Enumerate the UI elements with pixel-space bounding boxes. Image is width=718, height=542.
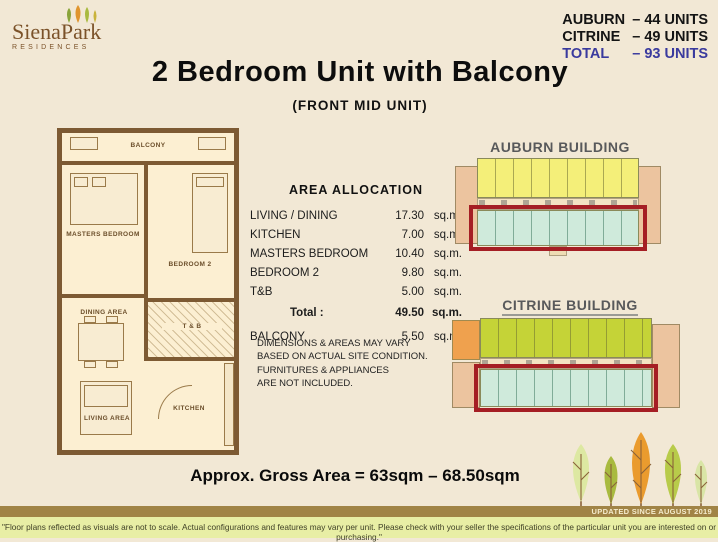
tb-label: T & B — [162, 323, 222, 330]
building-endcap-orange — [452, 320, 480, 360]
auburn-building-label: AUBURN BUILDING — [470, 139, 650, 155]
area-allocation-table: AREA ALLOCATION LIVING / DINING 17.30 sq… — [250, 183, 462, 343]
logo-trees-icon — [64, 5, 106, 24]
chair — [84, 316, 96, 323]
row-label: KITCHEN — [250, 229, 378, 241]
entry-door-swing — [158, 385, 192, 419]
row-value: 5.00 — [378, 286, 424, 298]
row-label: LIVING / DINING — [250, 210, 378, 222]
balcony-zone: BALCONY — [62, 133, 234, 165]
logo-name: SienaPark — [12, 21, 132, 43]
footer-disclaimer-bar: "Floor plans reflected as visuals are no… — [0, 517, 718, 538]
row-unit: sq.m. — [424, 286, 462, 298]
row-value: 17.30 — [378, 210, 424, 222]
footer-brown-bar: UPDATED SINCE AUGUST 2019 — [0, 506, 718, 517]
row-value: 9.80 — [378, 267, 424, 279]
masters-bedroom-label: MASTERS BEDROOM — [62, 231, 144, 238]
balcony-planter — [198, 137, 226, 150]
row-value: 7.00 — [378, 229, 424, 241]
total-label: Total : — [250, 307, 378, 319]
citrine-building-plan — [450, 318, 682, 414]
row-value: 10.40 — [378, 248, 424, 260]
citrine-building-label-text: CITRINE BUILDING — [502, 297, 638, 316]
page-subtitle: (FRONT MID UNIT) — [40, 98, 680, 113]
total-row: Total : 49.50 sq.m. — [250, 307, 462, 319]
kitchen-counter — [224, 363, 234, 446]
logo: SienaPark RESIDENCES — [12, 5, 132, 51]
row-label: MASTERS BEDROOM — [250, 248, 378, 260]
dining-table — [78, 323, 124, 361]
unit-dividers — [478, 159, 638, 197]
footer-disclaimer-text: "Floor plans reflected as visuals are no… — [0, 517, 718, 542]
row-label: T&B — [250, 286, 378, 298]
citrine-top-units-row — [480, 318, 652, 358]
unit-floor-plan: BALCONY MASTERS BEDROOM BEDROOM 2 DINING… — [57, 128, 239, 455]
wall — [144, 357, 234, 361]
row-label: BEDROOM 2 — [250, 267, 378, 279]
pillow — [196, 177, 224, 187]
sofa-cushion — [84, 385, 128, 407]
trees-illustration — [563, 430, 715, 507]
pillow — [74, 177, 88, 187]
chair — [106, 316, 118, 323]
unit-highlight-box — [469, 205, 647, 251]
bedroom2-label: BEDROOM 2 — [150, 261, 230, 268]
gross-area-note: Approx. Gross Area = 63sqm – 68.50sqm — [100, 466, 610, 486]
logo-subtitle: RESIDENCES — [12, 44, 132, 51]
unit-dividers — [481, 319, 651, 357]
page-title: 2 Bedroom Unit with Balcony — [40, 56, 680, 89]
total-value: 49.50 — [378, 307, 424, 319]
wall — [144, 165, 148, 298]
unit-summary: AUBURN – 44 UNITS CITRINE – 49 UNITS TOT… — [562, 12, 708, 62]
unit-highlight-box — [474, 364, 658, 412]
citrine-units-label: CITRINE — [562, 29, 632, 45]
citrine-units-value: – 49 UNITS — [632, 29, 708, 45]
area-allocation-title: AREA ALLOCATION — [250, 183, 462, 197]
dining-label: DINING AREA — [64, 309, 144, 316]
auburn-building-plan — [455, 158, 661, 258]
balcony-planter — [70, 137, 98, 150]
pillow — [92, 177, 106, 187]
auburn-top-units-row — [477, 158, 639, 198]
wall — [62, 294, 148, 298]
dimensions-disclaimer: DIMENSIONS & AREAS MAY VARY BASED ON ACT… — [257, 337, 447, 390]
area-allocation-rows: LIVING / DINING 17.30 sq.m. KITCHEN 7.00… — [250, 210, 462, 298]
chair — [84, 361, 96, 368]
row-unit: sq.m. — [424, 267, 462, 279]
chair — [106, 361, 118, 368]
auburn-units-value: – 44 UNITS — [632, 12, 708, 28]
auburn-units-label: AUBURN — [562, 12, 632, 28]
citrine-building-label: CITRINE BUILDING — [475, 297, 665, 313]
updated-since-label: UPDATED SINCE AUGUST 2019 — [592, 507, 712, 516]
living-label: LIVING AREA — [64, 415, 150, 422]
